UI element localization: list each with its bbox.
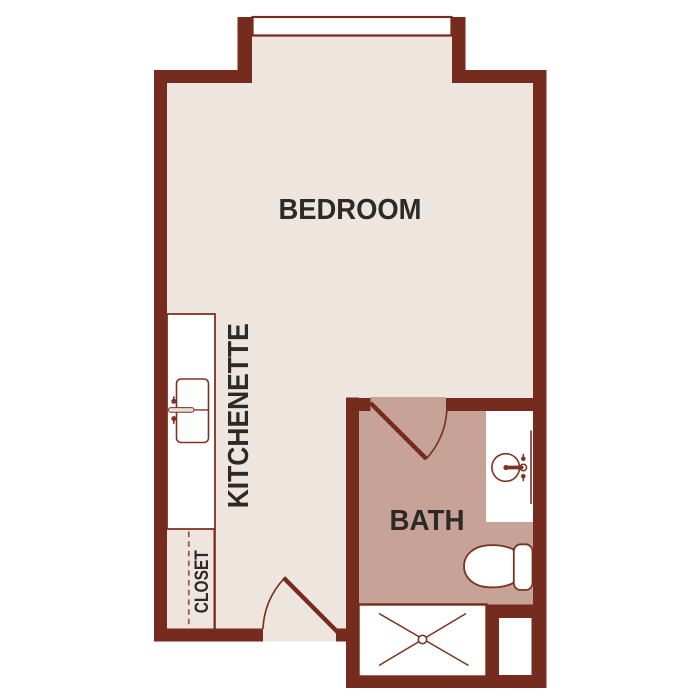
svg-text:BEDROOM: BEDROOM: [279, 194, 422, 226]
svg-text:BATH: BATH: [390, 505, 465, 537]
svg-text:KITCHENETTE: KITCHENETTE: [223, 323, 255, 508]
svg-text:CLOSET: CLOSET: [192, 550, 213, 613]
